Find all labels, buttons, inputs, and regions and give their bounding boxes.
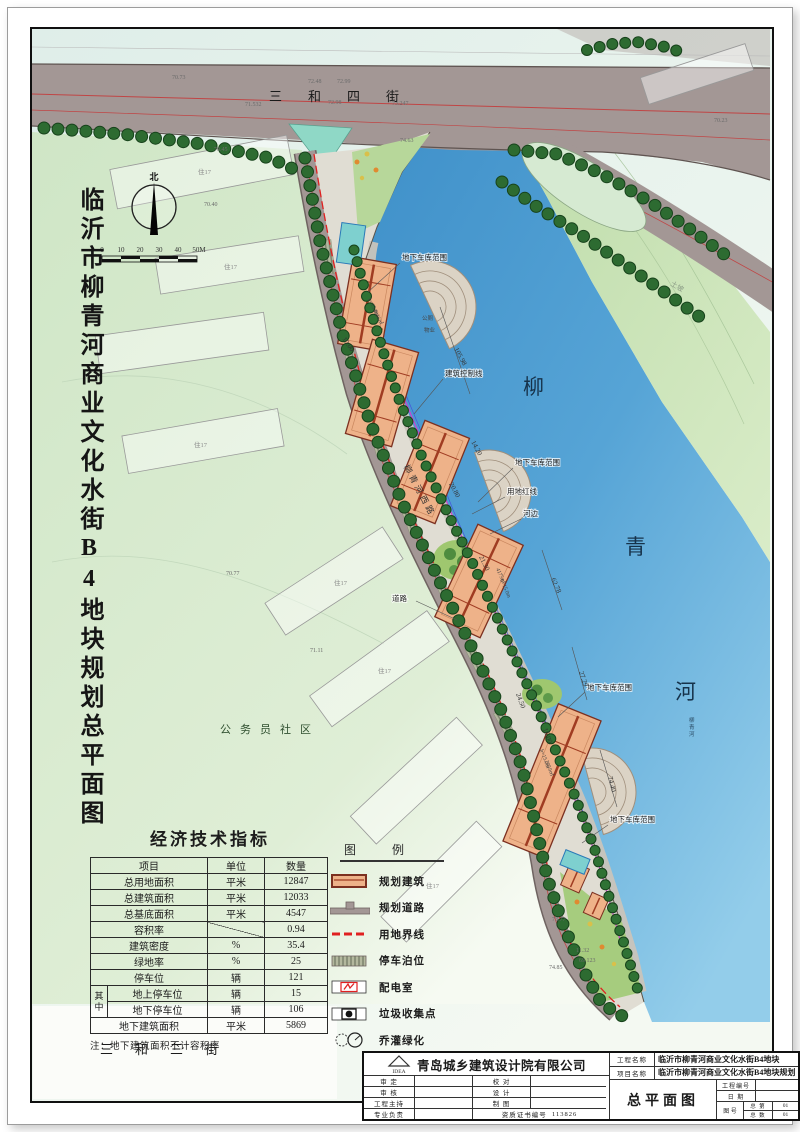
table-row: 容积率0.94 [91,922,328,938]
group-cell: 其中 [91,986,108,1018]
table-row: 其中地上停车位辆15 [91,986,328,1002]
land-boundary-swatch [330,926,370,942]
title-block: IDEA 青岛城乡建筑设计院有限公司 审 定 校 对 审 核 设 计 工程主持 … [362,1051,800,1121]
resident-label-5: 住17 [378,666,392,675]
sign-label: 工程主持 [364,1097,414,1108]
bench-11-32: 11.32 [576,948,589,954]
label-garage-extent-1: 地下车库范围 [402,252,447,262]
table-row: 停车位辆121 [91,970,328,986]
river-small-3: 河 [689,730,695,738]
legend-item-boundary: 用地界线 [330,921,482,948]
road-elev-72-99: 72.99 [337,79,351,85]
spot-elev-70-23: 70.23 [714,118,728,124]
trash-point-swatch [330,1006,370,1022]
label-property: 物业 [424,326,436,334]
legend-panel: 图例 规划建筑 规划道路 用地界线 停车泊位 配电室 垃圾收集点 乔灌绿化 [330,841,482,1054]
table-row: 总建筑面积平米12033 [91,890,328,906]
cert-number: 113826 [552,1111,577,1118]
project-name-label: 工程名称 [610,1053,654,1066]
resident-label-3: 住17 [194,440,208,449]
fig-count-label: 总 数 [744,1111,772,1119]
parking-swatch [330,953,370,969]
indicators-note: 注：地下建筑面积不计容积率 [90,1038,330,1052]
col-header-value: 数量 [265,858,328,874]
label-toilet: 公厕 [422,315,434,322]
planned-building-swatch [330,873,370,889]
label-road: 道路 [392,593,407,603]
north-label: 北 [149,171,158,182]
legend-item-road: 规划道路 [330,895,482,922]
power-room-swatch [330,979,370,995]
figure-no-label: 图 号 [717,1102,743,1119]
label-control-line: 建筑控制线 [445,368,483,378]
fig-count-value: 01 [772,1111,798,1119]
company-name: 青岛城乡建筑设计院有限公司 [417,1055,586,1074]
community-label: 公务员社区 [220,722,320,736]
signature-grid: 审 定 校 对 审 核 设 计 工程主持 制 图 专业负责 资质证书编号 113… [364,1075,609,1119]
legend-item-trash: 垃圾收集点 [330,1001,482,1028]
sign-label: 审 核 [364,1086,414,1097]
figure-no-row: 图 号 总 第01 总 数01 [717,1102,798,1119]
svg-text:10: 10 [118,246,126,254]
spot-elev-74-85: 74.85 [549,965,563,971]
resident-label-4: 住17 [334,578,348,587]
greening-swatch [330,1032,370,1048]
resident-label-1: 住17 [198,167,212,176]
river-char-liu: 柳 [523,375,544,399]
table-row: 地下停车位辆106 [91,1002,328,1018]
table-row: 地下建筑面积平米5869 [91,1018,328,1034]
label-garage-extent-4: 地下车库范围 [610,814,655,824]
road-elev-70-73: 70.73 [172,75,186,81]
company-logo: IDEA [387,1054,411,1074]
project-no-label: 工程编号 [717,1080,755,1090]
river-small-2: 青 [689,723,695,731]
project-no-row: 工程编号 [717,1080,798,1091]
table-row: 绿地率%25 [91,954,328,970]
road-elev-72-48: 72.48 [308,79,322,85]
spot-elev-70-40: 70.40 [204,202,218,208]
project-name-row: 工程名称 临沂市柳青河商业文化水街B4地块 [610,1053,798,1067]
table-row: 总用地面积平米12847 [91,874,328,890]
bench-69-123: 69.123 [579,958,596,964]
label-garage-extent-2: 地下车库范围 [515,457,560,467]
legend-item-parking: 停车泊位 [330,948,482,975]
spot-elev-71-11: 71.11 [310,648,323,654]
spot-elev-74-63: 74.63 [400,138,414,144]
sign-label: 专业负责 [364,1108,414,1119]
project-name-value: 临沂市柳青河商业文化水街B4地块 [654,1053,798,1066]
col-header-item: 项目 [91,858,208,874]
legend-item-power: 配电室 [330,974,482,1001]
cert-label: 资质证书编号 [502,1109,547,1119]
logo-text: IDEA [392,1069,405,1074]
legend-underline [340,860,444,862]
legend-item-green: 乔灌绿化 [330,1027,482,1054]
indicators-panel: 经济技术指标 项目 单位 数量 总用地面积平米12847 总建筑面积平米1203… [90,825,330,1052]
fig-total-label: 总 第 [744,1102,772,1110]
date-row: 日 期 [717,1091,798,1102]
cert-cell: 资质证书编号 113826 [472,1108,606,1119]
plan-sheet: 地下车库范围 地下车库范围 地下车库范围 地下车库范围 建筑控制线 用地红线 河… [0,0,800,1132]
river-char-qing: 青 [625,535,646,559]
indicators-title: 经济技术指标 [90,825,330,850]
spot-elev-70-45: 70.45 [214,147,228,153]
sign-label: 审 定 [364,1076,414,1086]
label-garage-extent-3: 地下车库范围 [587,682,632,692]
sheet-title-vertical: 临沂市柳青河商业文化水街B4地块规划总平面图 [72,187,107,867]
legend-item-building: 规划建筑 [330,868,482,895]
table-row: 建筑密度%35.4 [91,938,328,954]
sign-label: 校 对 [472,1076,530,1086]
river-char-he: 河 [675,680,696,704]
resident-label-2: 住17 [224,262,238,271]
label-red-line: 用地红线 [507,486,537,496]
street-name-top: 三和四街 [269,89,425,104]
fig-total-value: 01 [772,1102,798,1110]
label-river-edge: 河边 [523,509,538,518]
item-name-label: 项目名称 [610,1067,654,1080]
drawing-name: 总平面图 [610,1080,716,1119]
spot-elev-70-77: 70.77 [226,571,240,577]
table-row: 总基底面积平米4547 [91,906,328,922]
col-header-unit: 单位 [208,858,265,874]
item-name-value: 临沂市柳青河商业文化水街B4地块规划 [654,1067,798,1080]
sign-label: 设 计 [472,1086,530,1097]
svg-text:40: 40 [175,246,183,254]
legend-title: 图例 [330,841,482,858]
sign-label: 制 图 [472,1097,530,1108]
drawing-frame: 地下车库范围 地下车库范围 地下车库范围 地下车库范围 建筑控制线 用地红线 河… [30,27,774,1103]
svg-text:20: 20 [137,246,145,254]
indicators-table: 项目 单位 数量 总用地面积平米12847 总建筑面积平米12033 总基底面积… [90,857,328,1034]
spot-elev-73-77: 73.77 [552,917,566,923]
svg-text:30: 30 [156,246,164,254]
road-elev-71-532: 71.532 [245,102,262,108]
planned-road-swatch [330,900,370,916]
river-small-1: 柳 [689,716,695,724]
date-label: 日 期 [717,1091,755,1101]
item-name-row: 项目名称 临沂市柳青河商业文化水街B4地块规划 [610,1067,798,1081]
svg-text:50M: 50M [192,246,206,254]
